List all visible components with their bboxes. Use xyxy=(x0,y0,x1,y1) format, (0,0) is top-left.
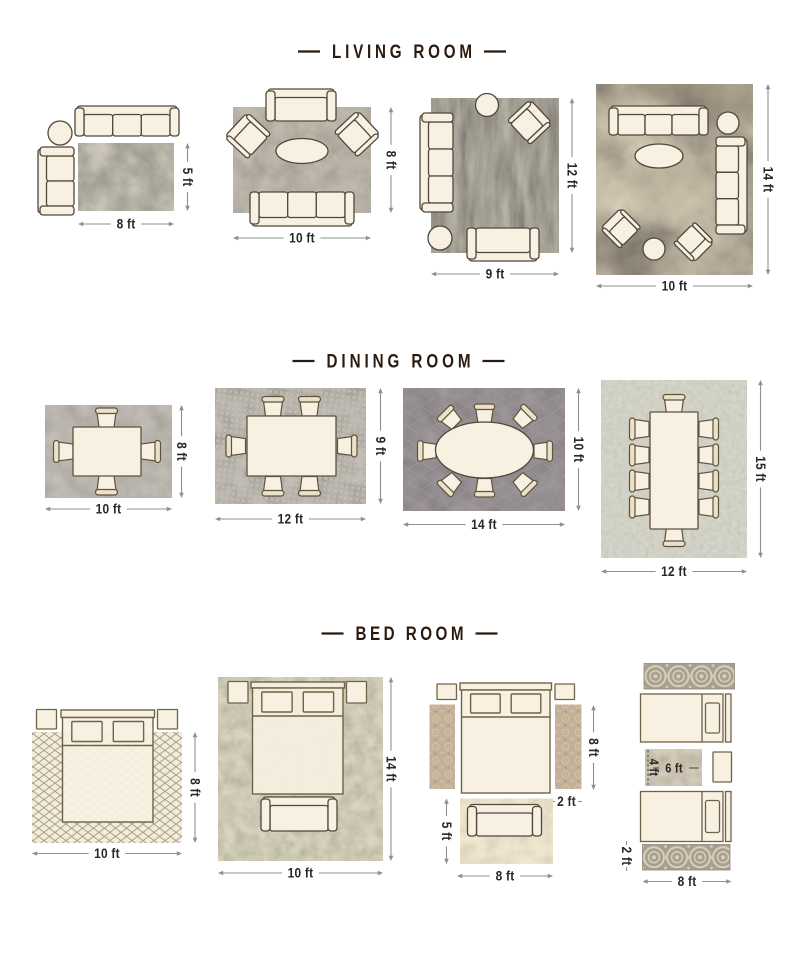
svg-text:DINING ROOM: DINING ROOM xyxy=(327,350,471,372)
svg-text:8 ft: 8 ft xyxy=(187,778,203,797)
svg-text:9 ft: 9 ft xyxy=(486,266,505,282)
svg-text:8 ft: 8 ft xyxy=(586,738,602,757)
svg-text:10 ft: 10 ft xyxy=(289,230,315,246)
svg-text:LIVING ROOM: LIVING ROOM xyxy=(332,40,472,62)
svg-text:6 ft: 6 ft xyxy=(665,761,683,776)
svg-text:8 ft: 8 ft xyxy=(496,868,515,884)
svg-text:10 ft: 10 ft xyxy=(94,845,120,861)
svg-text:12 ft: 12 ft xyxy=(564,163,580,189)
svg-text:8 ft: 8 ft xyxy=(117,216,136,232)
svg-text:14 ft: 14 ft xyxy=(760,167,776,193)
svg-text:8 ft: 8 ft xyxy=(383,151,399,170)
svg-text:4 ft: 4 ft xyxy=(646,759,661,777)
svg-text:8 ft: 8 ft xyxy=(174,442,190,461)
svg-text:9 ft: 9 ft xyxy=(373,437,389,456)
svg-text:10 ft: 10 ft xyxy=(288,865,314,881)
svg-text:BED ROOM: BED ROOM xyxy=(355,622,463,644)
svg-text:10 ft: 10 ft xyxy=(662,278,688,294)
svg-text:12 ft: 12 ft xyxy=(661,563,687,579)
svg-text:10 ft: 10 ft xyxy=(571,437,587,463)
svg-text:2 ft: 2 ft xyxy=(557,793,576,809)
svg-text:5 ft: 5 ft xyxy=(439,822,455,841)
svg-text:12 ft: 12 ft xyxy=(278,511,304,527)
svg-text:10 ft: 10 ft xyxy=(96,501,122,517)
svg-text:5 ft: 5 ft xyxy=(180,168,196,187)
svg-text:14 ft: 14 ft xyxy=(383,756,399,782)
svg-text:8 ft: 8 ft xyxy=(678,873,697,889)
svg-text:2 ft: 2 ft xyxy=(619,847,635,866)
svg-text:14 ft: 14 ft xyxy=(471,516,497,532)
svg-text:15 ft: 15 ft xyxy=(753,456,769,482)
